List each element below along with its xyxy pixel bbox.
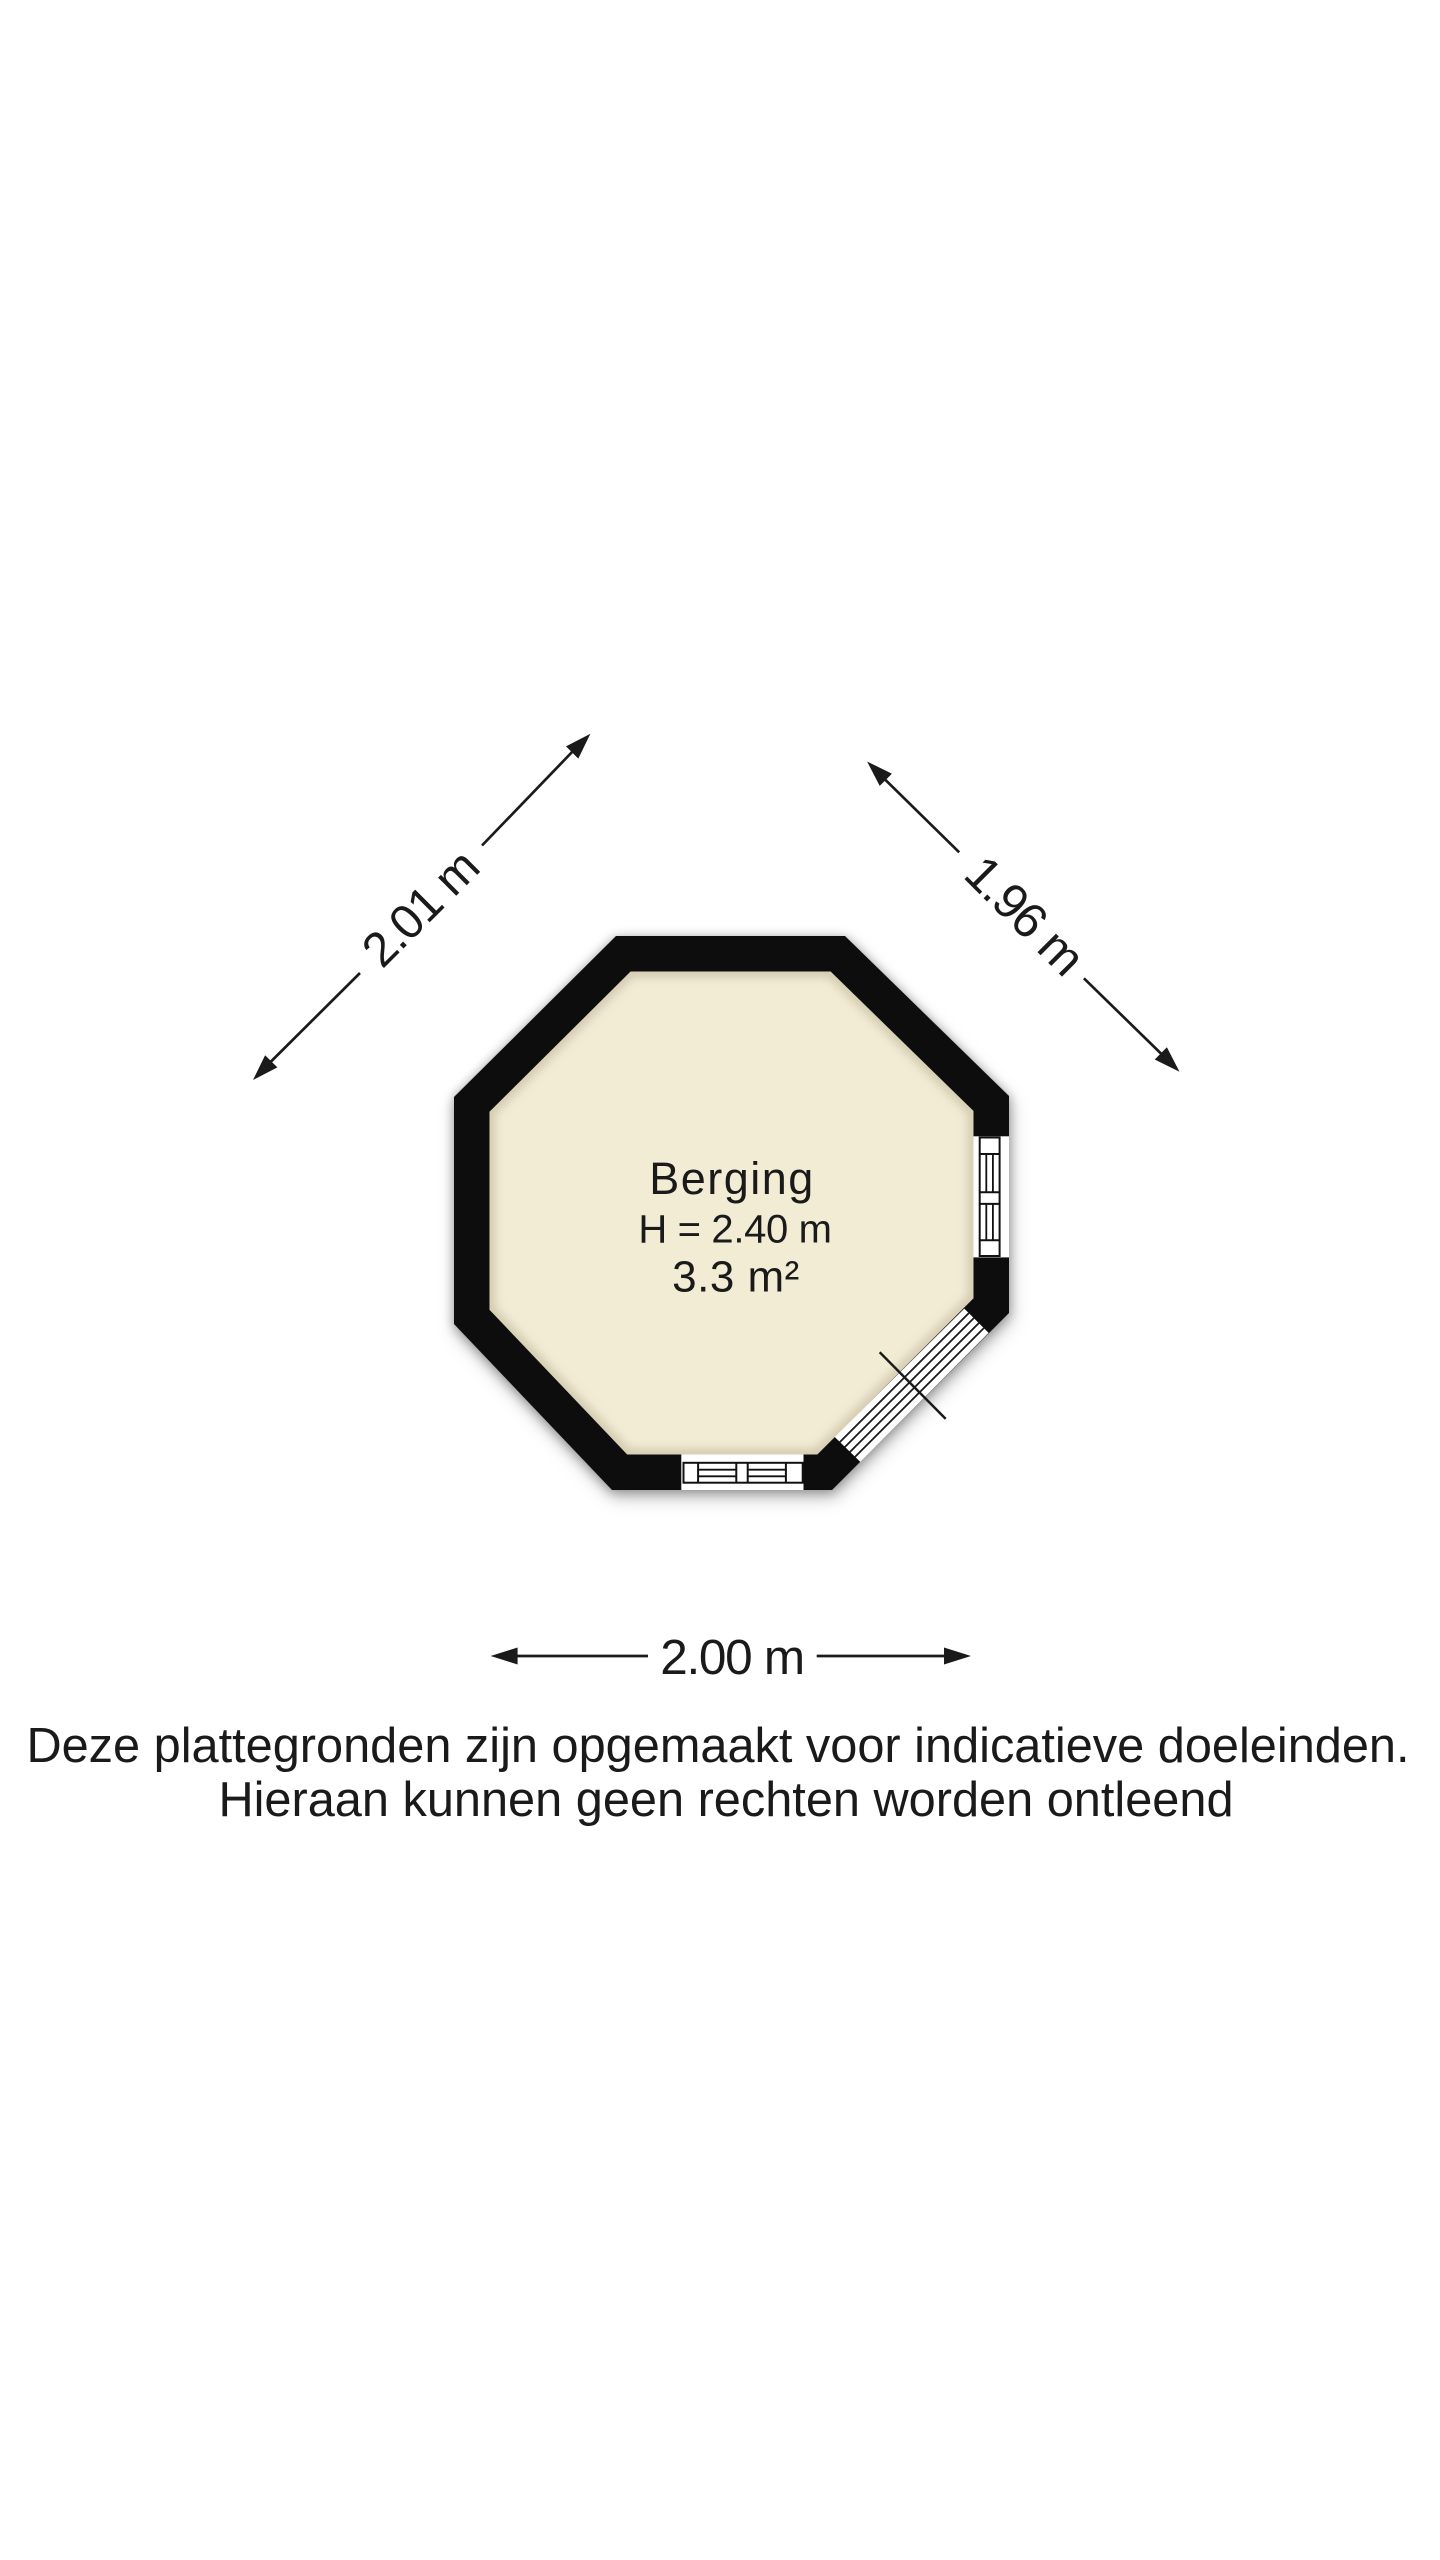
svg-text:1.96 m: 1.96 m bbox=[954, 845, 1094, 985]
svg-text:Hieraan kunnen geen rechten wo: Hieraan kunnen geen rechten worden ontle… bbox=[218, 1773, 1233, 1827]
svg-text:3.3 m²: 3.3 m² bbox=[672, 1252, 800, 1301]
svg-text:2.01 m: 2.01 m bbox=[352, 840, 490, 978]
svg-text:2.00 m: 2.00 m bbox=[660, 1630, 804, 1685]
svg-text:Berging: Berging bbox=[649, 1153, 815, 1204]
svg-text:Deze plattegronden zijn opgema: Deze plattegronden zijn opgemaakt voor i… bbox=[26, 1719, 1409, 1773]
svg-text:H = 2.40 m: H = 2.40 m bbox=[638, 1208, 831, 1252]
